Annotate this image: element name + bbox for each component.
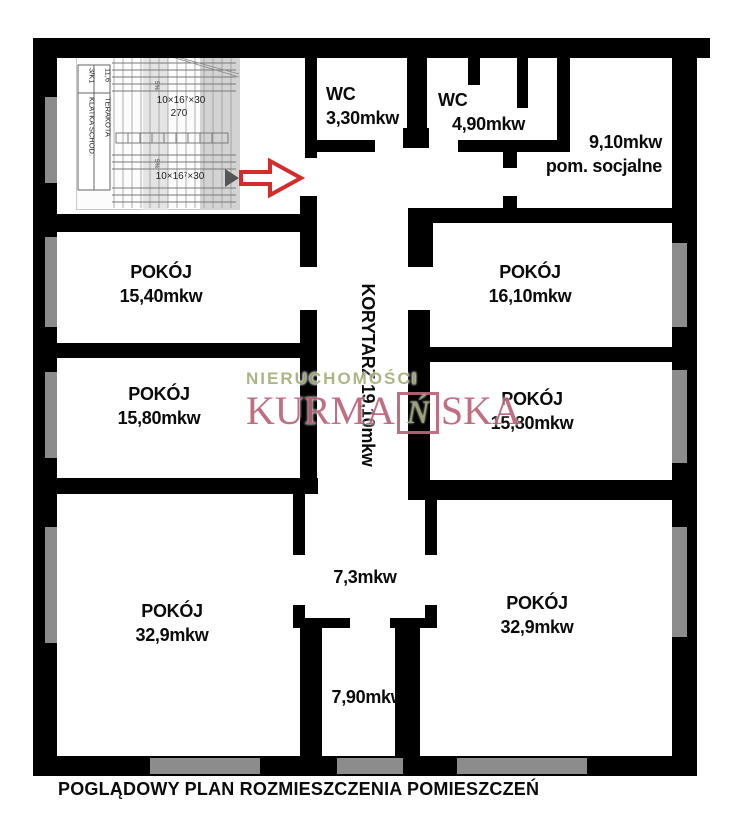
room-area: 32,9mkw <box>467 615 607 639</box>
wall-between-1580-329-right <box>420 480 672 500</box>
watermark-letter-box: Ń <box>397 392 439 434</box>
floor-plan: 3/K1 KLATKA SCHOD. 11,6 TERAKOTA 10×16⁷×… <box>0 0 745 816</box>
wall-between-1580-329-left <box>33 478 318 494</box>
watermark-brand: KURMA Ń SKA <box>246 390 521 432</box>
room-name: POKÓJ <box>102 599 242 623</box>
wall-room1610-top <box>408 208 672 223</box>
label-room-329-right: POKÓJ 32,9mkw <box>467 591 607 639</box>
wall-room790-top-right <box>390 618 435 628</box>
watermark-brand-prefix: KURMA <box>246 390 395 432</box>
room-name: POKÓJ <box>467 591 607 615</box>
label-room-1540: POKÓJ 15,40mkw <box>91 260 231 308</box>
watermark-brand-suffix: SKA <box>441 390 521 432</box>
room-name: POKÓJ <box>91 260 231 284</box>
agency-watermark: NIERUCHOMOŚCI KURMA Ń SKA <box>246 369 521 432</box>
inset-slope-mark-upper: 5% <box>153 81 160 91</box>
inset-stair-note-upper: 10×16⁷×30 <box>157 95 206 106</box>
label-room-1610: POKÓJ 16,10mkw <box>460 260 600 308</box>
window-segment <box>672 370 687 463</box>
label-wc-large: WC 4,90mkw <box>438 88 525 136</box>
room-area: 3,30mkw <box>326 106 399 130</box>
inset-stair-note-lower: 10×16⁷×30 <box>156 171 205 182</box>
window-segment <box>672 243 687 327</box>
label-room-329-left: POKÓJ 32,9mkw <box>102 599 242 647</box>
label-wc-small: WC 3,30mkw <box>326 82 399 130</box>
wall-corridor-left-lower <box>293 480 305 555</box>
wall-social-left <box>557 58 570 147</box>
window-segment <box>45 527 57 643</box>
wall-room790-right <box>395 618 420 756</box>
inset-room-name: KLATKA SCHOD. <box>88 97 97 156</box>
entrance-arrow-shape <box>241 161 301 195</box>
watermark-boxed-letter: Ń <box>407 392 429 434</box>
wall-social-door-jamb-top <box>503 148 517 168</box>
window-segment <box>337 758 403 774</box>
entrance-arrow-icon <box>222 153 307 201</box>
room-name: POKÓJ <box>89 382 229 406</box>
staircase-inset: 3/K1 KLATKA SCHOD. 11,6 TERAKOTA 10×16⁷×… <box>76 55 240 210</box>
window-segment <box>45 372 57 458</box>
wall-below-wc-small <box>310 140 375 152</box>
inset-room-label-box: 3/K1 KLATKA SCHOD. 11,6 TERAKOTA <box>78 65 113 190</box>
room-name: WC <box>326 82 399 106</box>
label-social-room: 9,10mkw pom. socjalne <box>518 130 662 178</box>
wall-corridor-right-lower <box>425 500 437 555</box>
room-area: 7,3mkw <box>295 565 435 589</box>
room-area: 15,40mkw <box>91 284 231 308</box>
wall-wc-large-stub-b <box>517 58 528 108</box>
label-room-1580-left: POKÓJ 15,80mkw <box>89 382 229 430</box>
inset-floor-material: TERAKOTA <box>104 97 113 137</box>
window-segment <box>457 758 587 774</box>
room-name: pom. socjalne <box>518 154 662 178</box>
plan-caption: POGLĄDOWY PLAN ROZMIESZCZENIA POMIESZCZE… <box>58 779 539 800</box>
wall-between-1610-1580 <box>408 347 672 362</box>
room-name: WC <box>438 88 525 112</box>
room-area: 4,90mkw <box>452 112 525 136</box>
window-segment <box>45 97 57 183</box>
wall-wc-large-stub-a <box>468 58 480 85</box>
room-area: 32,9mkw <box>102 623 242 647</box>
window-segment <box>45 237 57 327</box>
label-hall-73: 7,3mkw <box>295 565 435 589</box>
wall-room790-top-left <box>312 618 350 628</box>
wall-outer-top <box>33 38 710 58</box>
door-direction-triangle <box>225 169 239 187</box>
room-area: 16,10mkw <box>460 284 600 308</box>
room-name: POKÓJ <box>460 260 600 284</box>
inset-slope-mark-lower: 5% <box>153 159 160 169</box>
wall-room790-left <box>300 618 322 756</box>
wall-corridor-right-upper <box>408 208 433 267</box>
inset-room-number: 3/K1 <box>88 68 97 83</box>
wall-between-1540-1580 <box>55 343 317 358</box>
wall-below-staircase <box>55 214 305 232</box>
room-area: 15,80mkw <box>89 406 229 430</box>
watermark-line1: NIERUCHOMOŚCI <box>246 369 521 389</box>
wall-wc-divider-foot <box>403 128 429 148</box>
window-segment <box>672 527 687 637</box>
inset-stair-run-width: 270 <box>171 108 188 119</box>
window-segment <box>150 758 260 774</box>
inset-room-area: 11,6 <box>104 68 113 82</box>
